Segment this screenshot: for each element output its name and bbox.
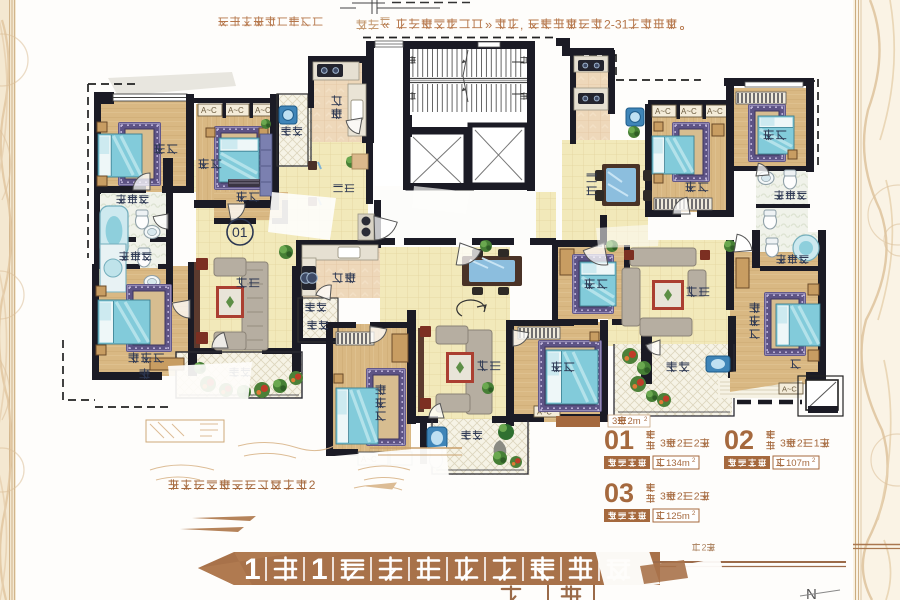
svg-text:A~C: A~C (228, 106, 244, 115)
svg-text:«: « (382, 17, 389, 32)
svg-text:2m: 2m (628, 416, 641, 427)
svg-text:02: 02 (724, 425, 754, 455)
svg-text:2: 2 (309, 478, 316, 492)
svg-text:A~C: A~C (255, 106, 271, 115)
svg-text:2: 2 (702, 542, 707, 552)
svg-text:A~C: A~C (655, 107, 671, 116)
svg-text:01: 01 (232, 224, 248, 240)
svg-text:3: 3 (612, 416, 617, 427)
svg-text:2-31: 2-31 (604, 18, 629, 32)
svg-text:1: 1 (311, 553, 328, 586)
svg-text:2: 2 (694, 491, 700, 503)
svg-text:3: 3 (660, 491, 666, 503)
svg-text:»: » (485, 17, 492, 32)
svg-text:2: 2 (677, 491, 683, 503)
svg-text:1: 1 (244, 553, 261, 586)
svg-text:125m: 125m (666, 511, 690, 522)
svg-text:A~C: A~C (707, 107, 723, 116)
svg-text:107m: 107m (786, 458, 810, 469)
svg-text:N: N (806, 586, 817, 600)
svg-text:1: 1 (814, 438, 820, 450)
svg-text:A~C: A~C (201, 106, 217, 115)
svg-text:2: 2 (677, 438, 683, 450)
svg-text:2: 2 (694, 438, 700, 450)
svg-text:03: 03 (604, 478, 634, 508)
svg-text:3: 3 (660, 438, 666, 450)
svg-text:,: , (520, 18, 523, 32)
svg-text:A~C: A~C (782, 385, 797, 394)
svg-text:134m: 134m (666, 458, 690, 469)
svg-text:01: 01 (604, 425, 634, 455)
svg-text:2: 2 (797, 438, 803, 450)
svg-text:3: 3 (780, 438, 786, 450)
svg-text:A~C: A~C (681, 107, 697, 116)
